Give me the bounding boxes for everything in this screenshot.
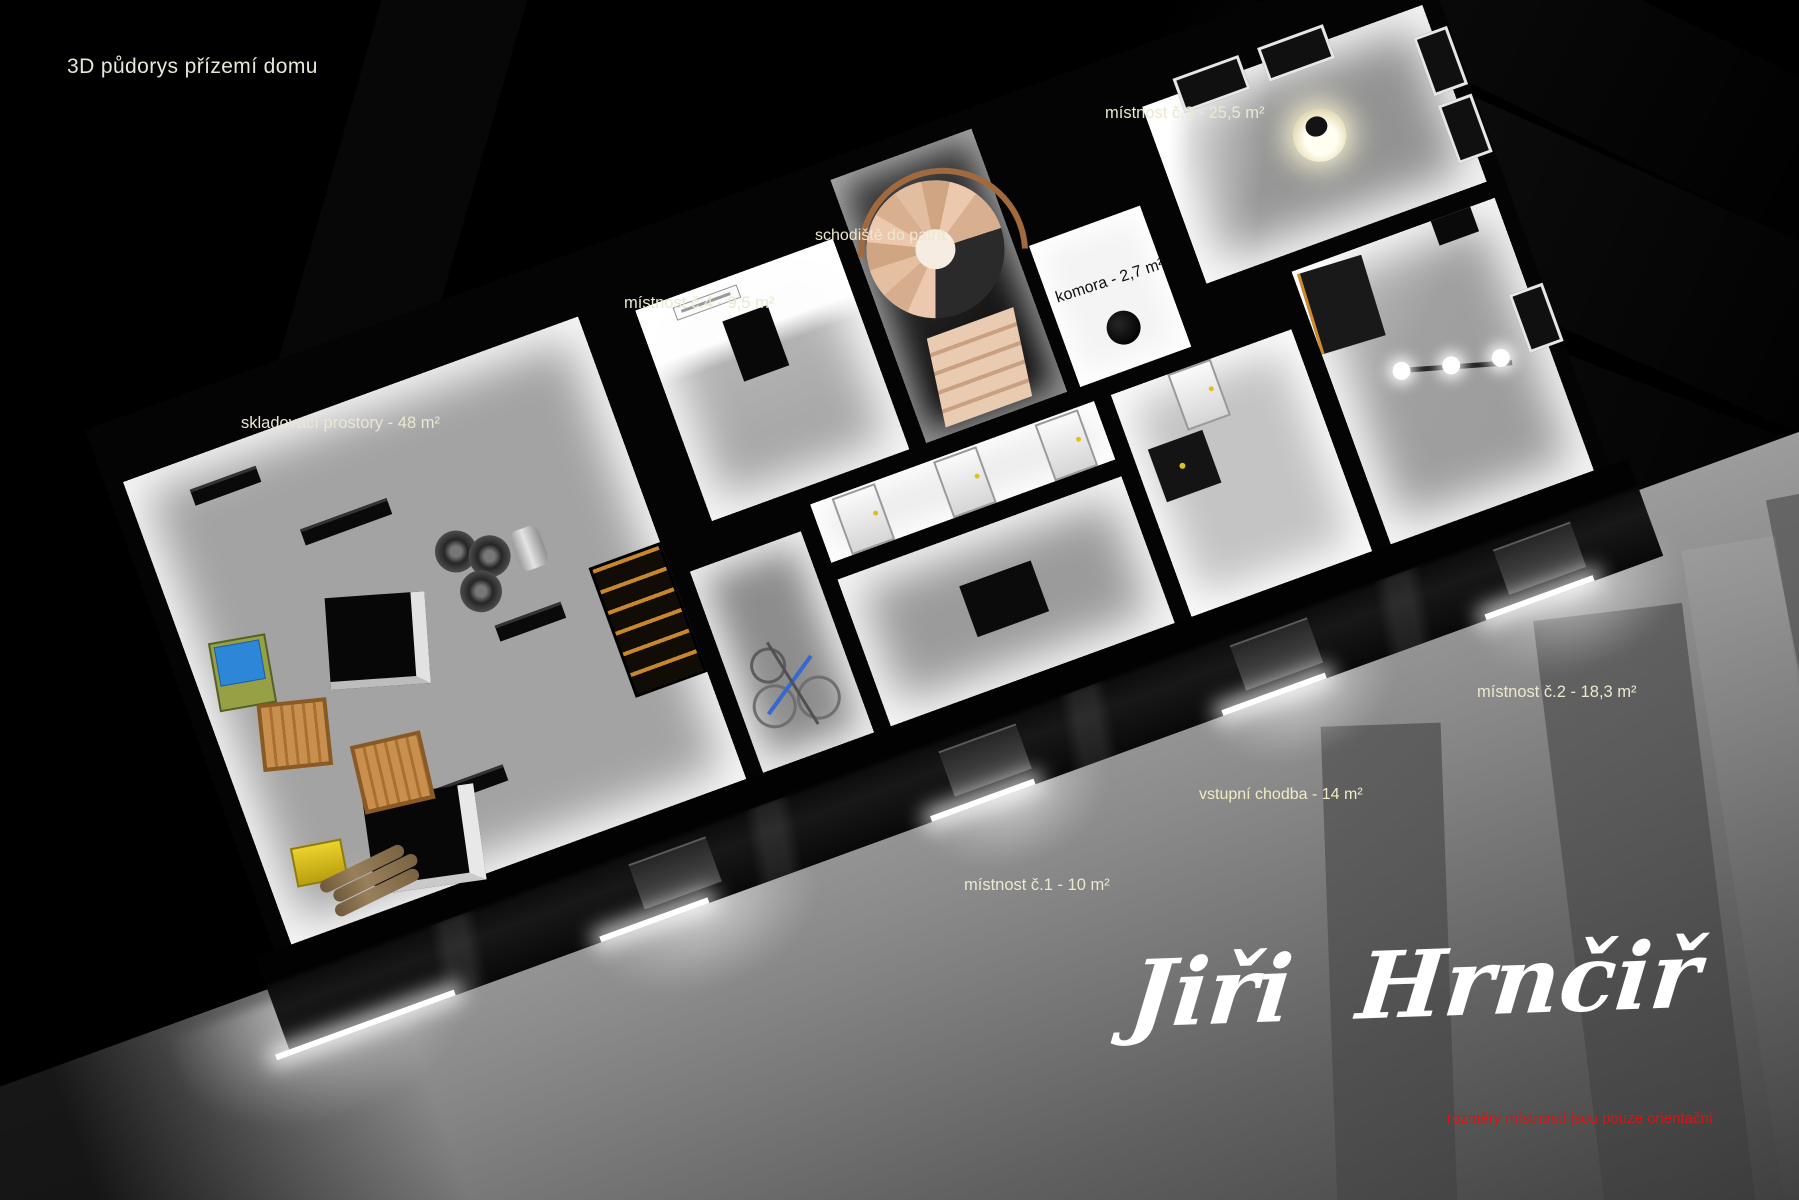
disclaimer-note: rozměry místností jsou pouze orientační: [1447, 1110, 1713, 1127]
floor-drain: [1102, 306, 1146, 350]
floor-beam: [300, 498, 392, 545]
light-bulb: [1392, 361, 1411, 380]
entrance-hall-label: vstupní chodba - 14 m²: [1199, 786, 1363, 804]
cabinet: [1148, 430, 1222, 502]
door: [933, 446, 997, 518]
wall-opening: [722, 305, 789, 382]
render-canvas: komora - 2,7 m²: [0, 0, 1799, 1200]
room-komora-label: komora - 2,7 m²: [1022, 245, 1199, 318]
door: [832, 483, 896, 555]
room-2-label: místnost č.2 - 18,3 m²: [1477, 683, 1637, 702]
shelf-slats: [592, 546, 703, 694]
window: [1438, 93, 1493, 164]
ceiling-lamp: [1285, 100, 1354, 169]
floorplan-building: komora - 2,7 m²: [85, 0, 1619, 980]
light-bulb: [1442, 356, 1461, 375]
wooden-shelf: [589, 542, 708, 698]
metal-cylinder: [508, 523, 551, 573]
window: [1413, 26, 1468, 97]
floor-mat: [959, 560, 1049, 637]
wall-opening: [1431, 207, 1479, 246]
black-box: [325, 591, 431, 690]
blue-machine: [208, 633, 277, 712]
door: [1035, 409, 1099, 481]
staircase-label: schodiště do patra: [815, 227, 946, 245]
author-signature: Jiři Hrnčiř: [1124, 919, 1735, 1048]
door: [1167, 359, 1231, 431]
floor-beam: [190, 466, 262, 506]
room-4-label: místnost č.4 - 9,5 m²: [624, 294, 774, 313]
storage-label: skladovací prostory - 48 m²: [241, 414, 440, 433]
window: [1509, 283, 1564, 354]
track-light: [1391, 336, 1517, 400]
desk: [1297, 255, 1386, 355]
room-3-label: místnost č.3 - 25,5 m²: [1105, 104, 1265, 123]
window: [1257, 24, 1335, 82]
wooden-crate: [256, 697, 333, 772]
machine-panel: [214, 639, 266, 686]
page-title: 3D půdorys přízemí domu: [67, 55, 318, 79]
room-1-label: místnost č.1 - 10 m²: [964, 876, 1110, 895]
